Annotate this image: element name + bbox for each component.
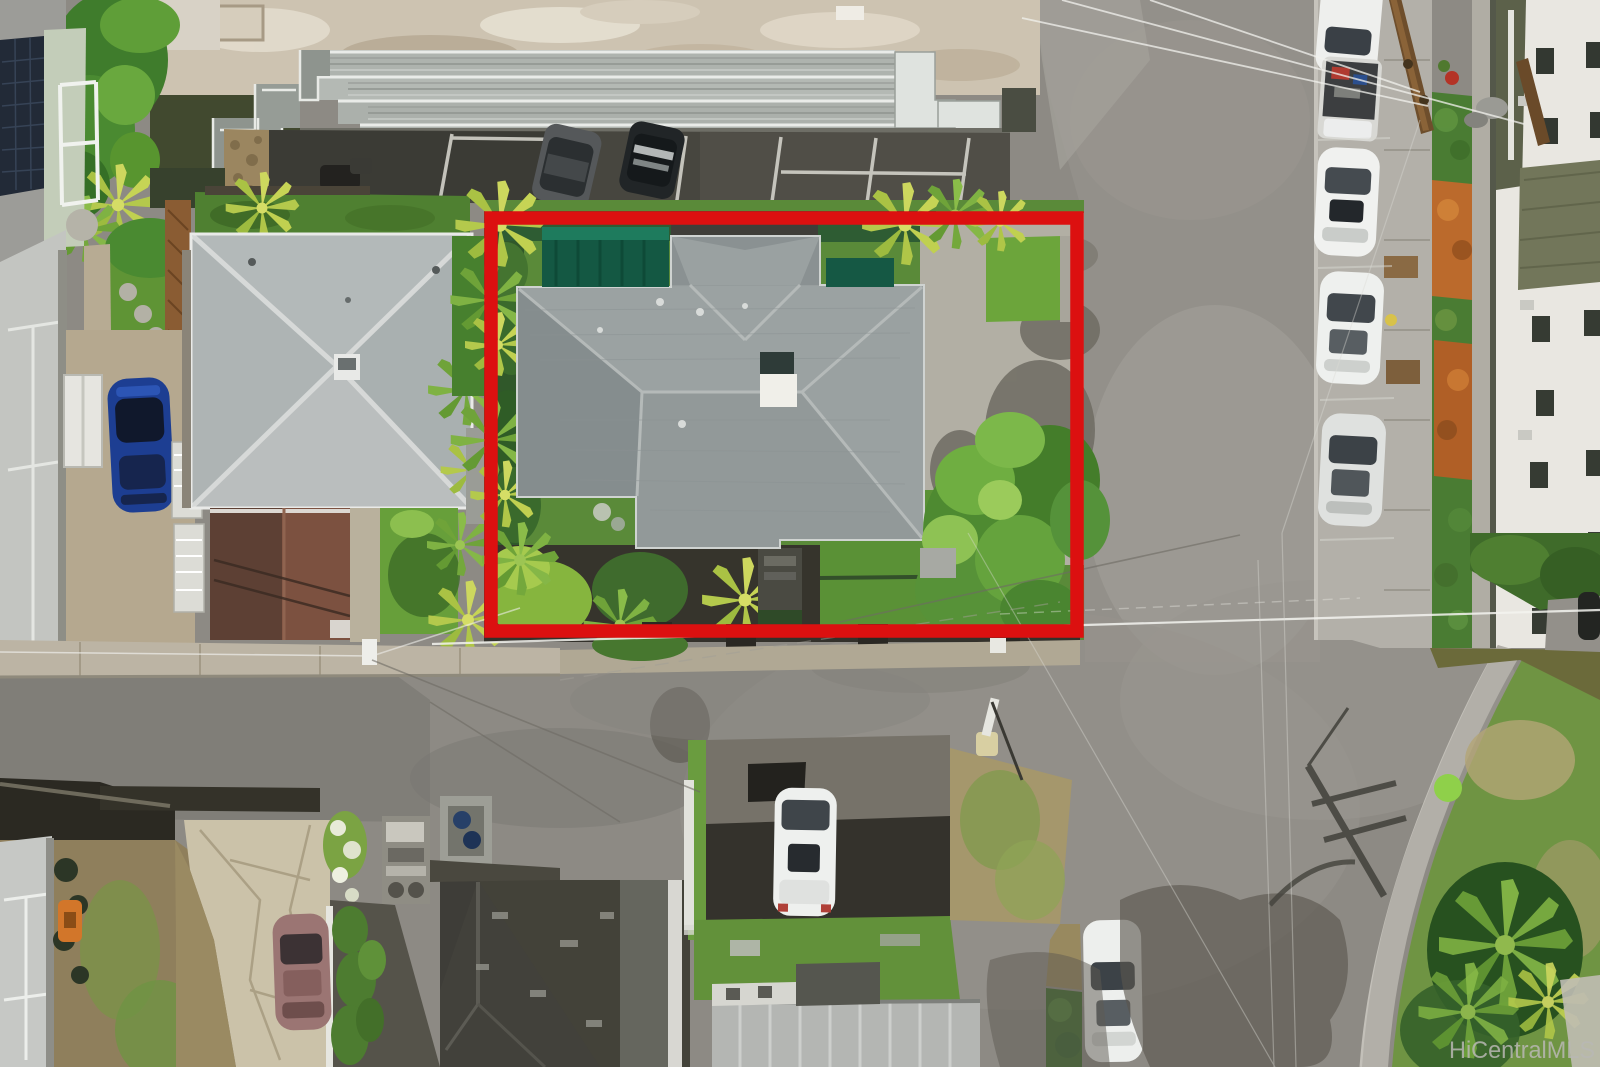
svg-text:HiCentralMLS: HiCentralMLS bbox=[1449, 1037, 1595, 1064]
